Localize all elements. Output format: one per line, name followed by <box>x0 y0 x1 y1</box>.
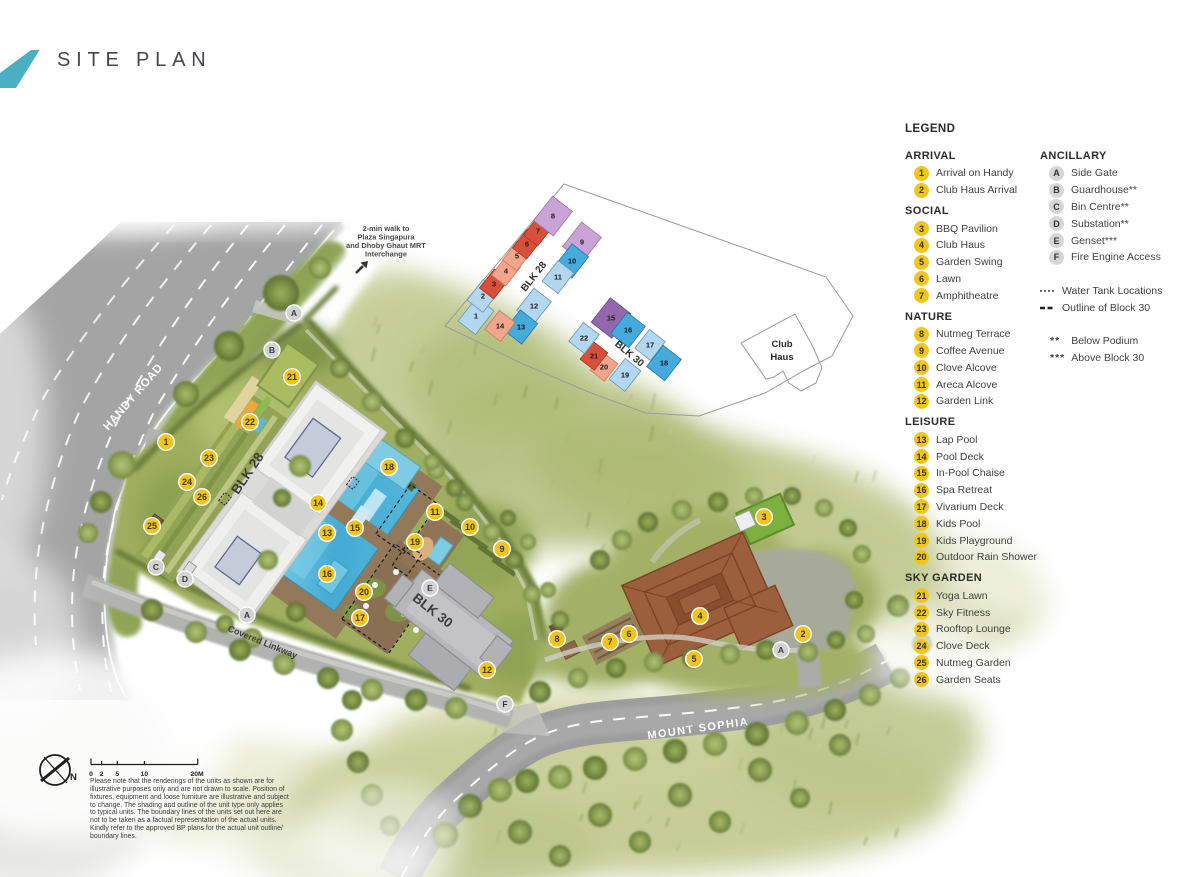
svg-text:A: A <box>244 610 250 620</box>
svg-text:14: 14 <box>313 498 323 508</box>
svg-text:2: 2 <box>100 771 104 778</box>
svg-text:10: 10 <box>141 771 149 778</box>
svg-text:22: 22 <box>580 334 588 343</box>
svg-text:7: 7 <box>607 637 612 647</box>
svg-text:10: 10 <box>465 522 475 532</box>
svg-text:14: 14 <box>496 322 505 331</box>
svg-text:18: 18 <box>660 359 668 368</box>
svg-text:B: B <box>269 345 275 355</box>
svg-text:0: 0 <box>89 771 93 778</box>
svg-text:10: 10 <box>568 257 576 266</box>
svg-text:N: N <box>70 772 77 783</box>
svg-text:9: 9 <box>499 544 504 554</box>
svg-text:3: 3 <box>492 280 496 289</box>
svg-text:Club: Club <box>771 339 792 350</box>
svg-text:15: 15 <box>607 314 615 323</box>
svg-text:26: 26 <box>197 492 207 502</box>
svg-text:7: 7 <box>536 227 540 236</box>
svg-text:Interchange: Interchange <box>365 250 407 259</box>
svg-text:D: D <box>182 574 188 584</box>
svg-text:17: 17 <box>355 613 365 623</box>
svg-text:1: 1 <box>163 437 168 447</box>
svg-text:18: 18 <box>384 462 394 472</box>
svg-text:21: 21 <box>287 372 297 382</box>
svg-text:8: 8 <box>551 212 555 221</box>
svg-text:5: 5 <box>115 771 119 778</box>
svg-text:6: 6 <box>626 629 631 639</box>
svg-text:15: 15 <box>350 523 360 533</box>
svg-text:C: C <box>153 562 159 572</box>
svg-text:3: 3 <box>761 512 766 522</box>
svg-text:A: A <box>291 308 297 318</box>
svg-text:A: A <box>778 645 784 655</box>
svg-text:24: 24 <box>182 477 192 487</box>
svg-text:19: 19 <box>621 371 629 380</box>
svg-text:6: 6 <box>525 240 529 249</box>
svg-text:13: 13 <box>322 528 332 538</box>
svg-text:17: 17 <box>646 341 654 350</box>
svg-text:9: 9 <box>580 238 584 247</box>
svg-text:12: 12 <box>530 302 538 311</box>
svg-text:20M: 20M <box>190 771 204 778</box>
svg-text:8: 8 <box>554 634 559 644</box>
svg-text:Haus: Haus <box>770 352 793 363</box>
svg-text:4: 4 <box>697 611 702 621</box>
svg-text:E: E <box>427 583 433 593</box>
svg-text:25: 25 <box>147 521 157 531</box>
svg-text:21: 21 <box>590 352 598 361</box>
svg-text:F: F <box>502 699 507 709</box>
svg-text:16: 16 <box>322 569 332 579</box>
svg-text:19: 19 <box>410 537 420 547</box>
svg-text:20: 20 <box>600 363 608 372</box>
svg-text:12: 12 <box>482 665 492 675</box>
svg-text:16: 16 <box>624 326 632 335</box>
svg-text:2: 2 <box>800 629 805 639</box>
svg-text:11: 11 <box>430 507 440 517</box>
svg-text:2: 2 <box>481 292 485 301</box>
svg-text:22: 22 <box>245 417 255 427</box>
svg-text:1: 1 <box>474 312 478 321</box>
svg-text:23: 23 <box>204 453 214 463</box>
svg-text:13: 13 <box>517 323 525 332</box>
svg-text:20: 20 <box>359 587 369 597</box>
svg-text:11: 11 <box>554 273 562 282</box>
svg-text:5: 5 <box>691 654 696 664</box>
